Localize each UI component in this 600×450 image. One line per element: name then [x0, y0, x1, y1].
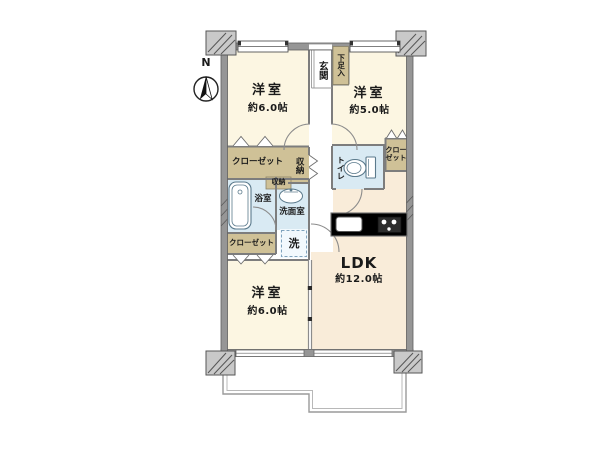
closet-right-label: クローゼット [385, 141, 407, 169]
window-bottom-right [314, 350, 392, 357]
window-bottom-left [236, 350, 304, 357]
bedroom-top-left-name: 洋室 [227, 82, 309, 100]
bathroom-label: 浴室 [249, 193, 277, 207]
compass-icon [194, 77, 218, 102]
bedroom-top-left-size: 約6.0帖 [227, 102, 309, 115]
window-top-right [350, 41, 400, 52]
balcony-outline [223, 370, 406, 412]
ldk-name: LDK [311, 255, 407, 272]
hall-storage-label: 収納 [288, 149, 309, 182]
bedroom-bottom-size: 約6.0帖 [227, 305, 308, 318]
entrance-label: 玄関 [313, 52, 330, 88]
kitchen-counter [331, 213, 407, 236]
ldk-size: 約12.0帖 [311, 273, 407, 286]
sink-icon [280, 189, 303, 203]
floor-plan-drawing [0, 0, 600, 450]
closet-bottom-left-label: クローゼット [227, 235, 276, 252]
bedroom-top-right-name: 洋室 [332, 85, 407, 103]
laundry-label: 洗 [281, 235, 307, 253]
floor-plan: N 洋室 約6.0帖 洋室 約5.0帖 洋室 約6.0帖 LDK 約12.0帖 … [0, 0, 600, 450]
kitchen-sink-icon [336, 217, 362, 232]
small-storage-label: 収納 [266, 177, 291, 189]
window-top-left [238, 41, 288, 52]
toilet-label: トイレ [333, 147, 347, 188]
stove-icon [378, 217, 401, 233]
closet-top-left-label: クローゼット [227, 147, 288, 178]
bedroom-bottom-name: 洋室 [227, 285, 308, 303]
bedroom-top-right-size: 約5.0帖 [332, 104, 407, 117]
entrance-door [309, 44, 332, 51]
washroom-label: 洗面室 [275, 206, 309, 219]
compass-north-label: N [198, 56, 214, 70]
bathtub-icon [229, 182, 251, 229]
shoe-cabinet-label: 下足入 [333, 48, 348, 83]
